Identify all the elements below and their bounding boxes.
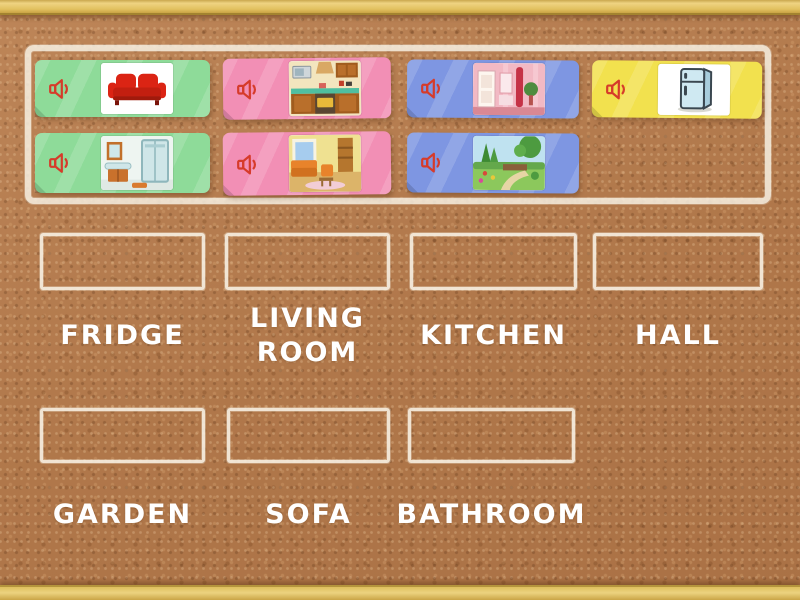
drop-zone-bathroom[interactable] bbox=[408, 408, 575, 463]
speaker-icon[interactable] bbox=[420, 77, 446, 101]
sofa-image bbox=[101, 63, 173, 114]
wood-frame-bottom bbox=[0, 585, 800, 600]
drop-zone-fridge[interactable] bbox=[40, 233, 205, 290]
audio-card-kitchen[interactable] bbox=[223, 57, 392, 120]
zone-label-kitchen: KITCHEN bbox=[410, 300, 577, 372]
drop-zone-garden[interactable] bbox=[40, 408, 205, 463]
zone-label-garden: GARDEN bbox=[40, 487, 205, 542]
corkboard: FRIDGE LIVING ROOM KITCHEN HALL GARDEN S… bbox=[0, 0, 800, 600]
audio-card-bathroom[interactable] bbox=[35, 133, 210, 193]
audio-card-living-room[interactable] bbox=[223, 131, 392, 196]
kitchen-image bbox=[289, 60, 362, 116]
zone-label-hall: HALL bbox=[593, 300, 763, 372]
speaker-icon[interactable] bbox=[236, 77, 262, 101]
hall-image bbox=[473, 63, 545, 115]
zone-label-fridge: FRIDGE bbox=[40, 300, 205, 372]
zone-label-living-room: LIVING ROOM bbox=[225, 300, 390, 372]
drop-zone-living-room[interactable] bbox=[225, 233, 390, 290]
garden-image bbox=[473, 136, 545, 190]
zone-label-bathroom: BATHROOM bbox=[408, 487, 575, 542]
audio-card-fridge[interactable] bbox=[592, 60, 763, 119]
audio-card-hall[interactable] bbox=[407, 59, 579, 118]
speaker-icon[interactable] bbox=[48, 151, 74, 175]
living-room-image bbox=[289, 134, 362, 192]
fridge-image bbox=[658, 64, 730, 116]
speaker-icon[interactable] bbox=[605, 77, 631, 101]
speaker-icon[interactable] bbox=[48, 77, 74, 101]
zone-label-sofa: SOFA bbox=[227, 487, 390, 542]
audio-card-garden[interactable] bbox=[407, 132, 579, 193]
drop-zone-hall[interactable] bbox=[593, 233, 763, 290]
bathroom-image bbox=[101, 136, 173, 190]
speaker-icon[interactable] bbox=[420, 151, 446, 175]
drop-zone-sofa[interactable] bbox=[227, 408, 390, 463]
drop-zone-kitchen[interactable] bbox=[410, 233, 577, 290]
wood-frame-top bbox=[0, 0, 800, 15]
audio-card-sofa[interactable] bbox=[35, 60, 210, 117]
speaker-icon[interactable] bbox=[236, 152, 262, 176]
